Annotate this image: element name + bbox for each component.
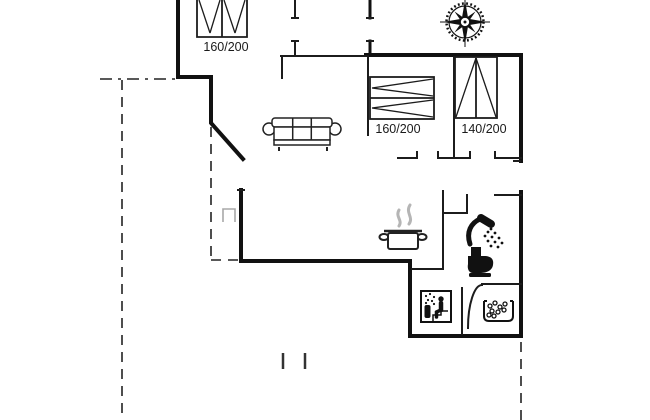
toilet-icon [468, 247, 493, 277]
bed-middle-icon [370, 77, 434, 119]
door-jamb-caps [237, 18, 521, 190]
shower-icon [469, 218, 504, 248]
bed-size-label: 160/200 [375, 122, 420, 136]
floor-plan-drawing: 160/200 160/200 140/200 [0, 0, 650, 420]
sauna-icon [421, 291, 451, 322]
shower-spray-dots [484, 228, 504, 249]
cooking-pot-icon [380, 205, 427, 249]
bed-right-icon [455, 57, 497, 118]
wall-whirlpool-curve [468, 285, 482, 328]
floor-plan-canvas: 160/200 160/200 140/200 [0, 0, 650, 420]
steam-icon [398, 205, 411, 226]
interior-walls [281, 0, 521, 334]
compass-rose-icon [440, 0, 490, 47]
whirlpool-bubbles [487, 301, 507, 318]
terrace-step-marker [223, 209, 235, 222]
bed-top-left-icon [197, 0, 247, 37]
bed-size-label: 140/200 [461, 122, 506, 136]
wall-hall-top [281, 56, 368, 78]
path-markers [283, 353, 305, 369]
wall-bath-north-jog [443, 195, 467, 213]
bed-size-label: 160/200 [203, 40, 248, 54]
whirlpool-icon [484, 301, 513, 321]
sofa-icon [263, 118, 341, 151]
